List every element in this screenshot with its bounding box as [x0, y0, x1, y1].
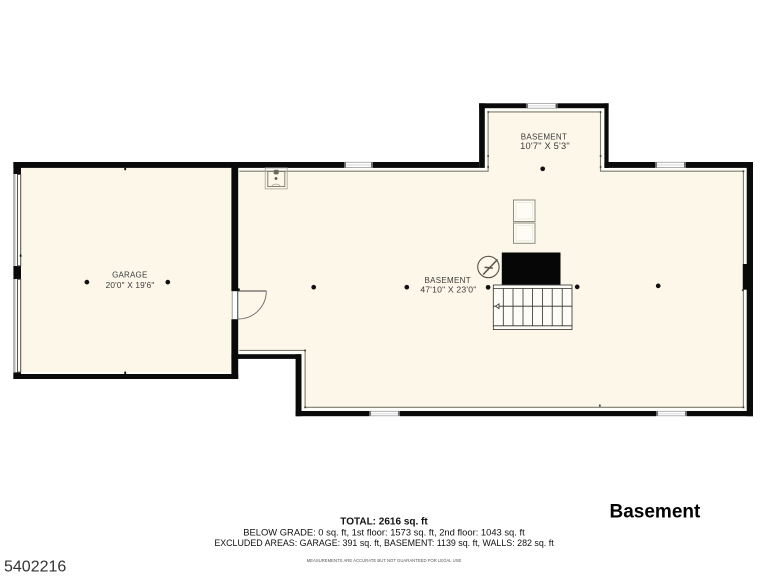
svg-text:MEASUREMENTS ARE ACCURATE BUT: MEASUREMENTS ARE ACCURATE BUT NOT GUARAN…: [307, 558, 462, 563]
svg-text:Basement: Basement: [610, 502, 701, 523]
svg-text:GARAGE: GARAGE: [112, 271, 147, 280]
svg-text:10'7" X 5'3": 10'7" X 5'3": [520, 141, 570, 151]
svg-text:BELOW GRADE: 0 sq. ft, 1st flo: BELOW GRADE: 0 sq. ft, 1st floor: 1573 s…: [243, 526, 525, 537]
svg-text:EXCLUDED AREAS: GARAGE: 391 sq: EXCLUDED AREAS: GARAGE: 391 sq. ft, BASE…: [214, 538, 554, 548]
svg-text:20'0" X 19'6": 20'0" X 19'6": [106, 281, 155, 290]
svg-text:BASEMENT: BASEMENT: [521, 132, 567, 141]
svg-text:47'10" X 23'0": 47'10" X 23'0": [420, 285, 476, 295]
svg-text:5402216: 5402216: [4, 559, 66, 576]
svg-text:BASEMENT: BASEMENT: [424, 276, 470, 285]
